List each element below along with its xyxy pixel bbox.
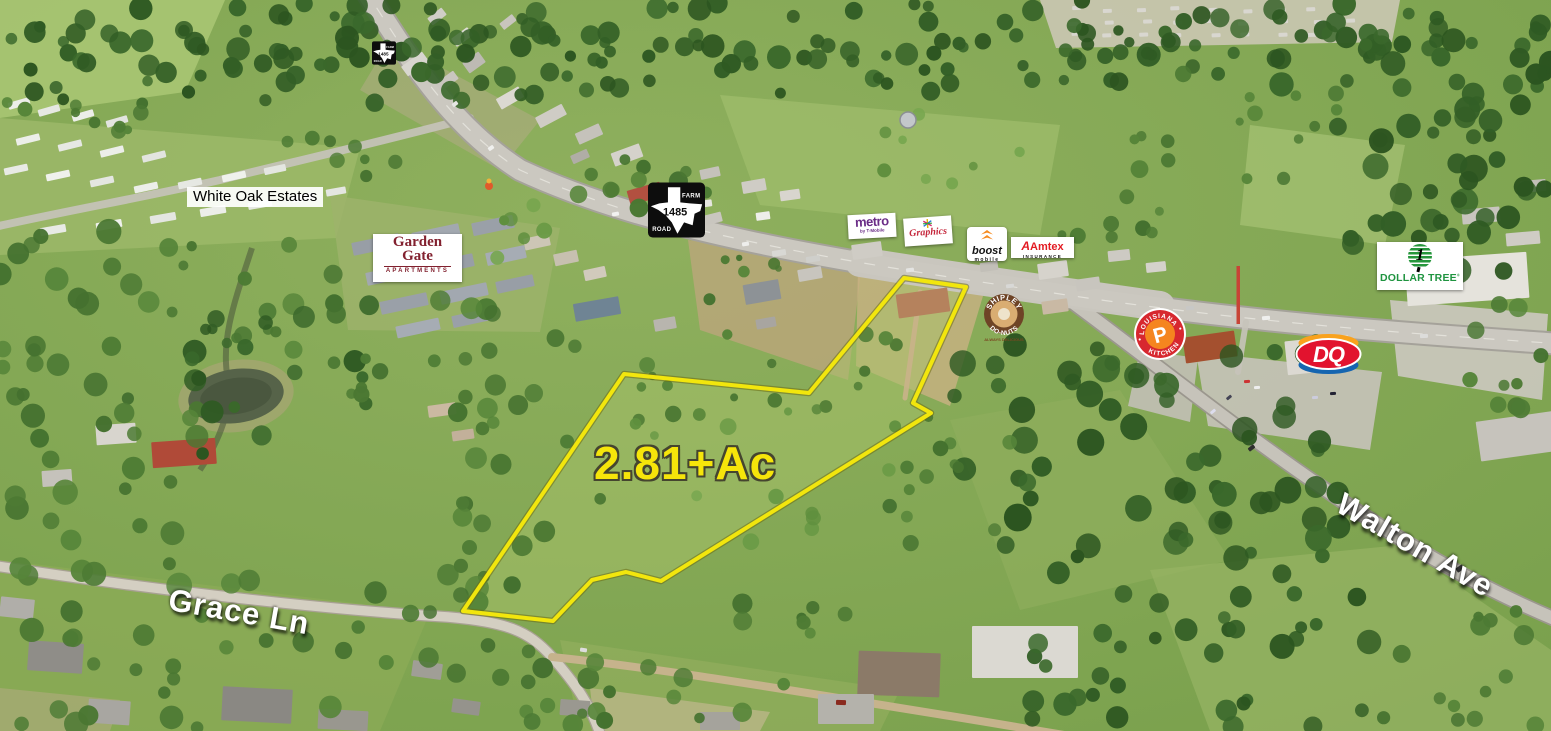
fm1485-sign-small: FARM 1485 ROAD	[372, 39, 396, 67]
aerial-property-photo: White Oak Estates Grace Ln Walton Ave 2.…	[0, 0, 1551, 731]
divider	[384, 266, 451, 267]
fm1485-sign-large: FARM 1485 ROAD	[648, 182, 705, 238]
amtex-insurance-sign: AAmtex INSURANCE	[1011, 237, 1074, 258]
water-tower	[900, 112, 916, 128]
shipley-tagline: ALWAYS DELICIOUS	[984, 337, 1024, 342]
metro-wordmark: metro	[847, 214, 896, 229]
boost-chevron-icon	[978, 229, 996, 241]
amtex-monogram: A	[1021, 239, 1030, 253]
farm-text: FARM	[682, 194, 700, 200]
road-text: ROAD	[652, 227, 671, 233]
script-store-wordmark: Graphics	[904, 226, 953, 239]
garden-gate-apartments-sign: Garden Gate APARTMENTS	[373, 234, 462, 282]
radio-tower	[1237, 266, 1241, 324]
amtex-wordmark: Amtex	[1030, 241, 1064, 253]
svg-text:ROAD: ROAD	[374, 60, 382, 63]
dairy-queen-logo: DQ	[1291, 333, 1366, 375]
acreage-label: 2.81+Ac	[594, 436, 776, 490]
boost-byline: mobile	[967, 257, 1007, 261]
route-number: 1485	[663, 207, 687, 219]
dollar-tree-sign: 1 DOLLAR TREE®	[1377, 242, 1463, 290]
svg-text:FARM: FARM	[386, 46, 394, 49]
script-store-sign: Graphics	[903, 215, 953, 246]
svg-text:1485: 1485	[378, 51, 389, 56]
dollar-tree-numeral: 1	[1407, 245, 1433, 265]
boost-wordmark: boost	[967, 246, 1007, 257]
garden-gate-subtitle: APARTMENTS	[373, 268, 462, 274]
dollar-tree-trunk	[1416, 267, 1420, 272]
dollar-tree-name-text: DOLLAR TREE	[1380, 272, 1457, 284]
shipley-donuts-logo: SHIPLEY DO-NUTS ALWAYS DELICIOUS	[974, 291, 1034, 345]
white-oak-estates-label: White Oak Estates	[187, 187, 323, 207]
registered-mark: ®	[1457, 273, 1460, 278]
amtex-subtitle: INSURANCE	[1011, 254, 1074, 258]
boost-mobile-sign: boost mobile	[967, 227, 1007, 261]
metro-by-tmobile-sign: metro by T-Mobile	[847, 213, 896, 239]
dollar-tree-wordmark: DOLLAR TREE®	[1377, 272, 1463, 285]
dq-monogram: DQ	[1313, 342, 1345, 367]
garden-gate-line2: Gate	[373, 250, 462, 264]
popeyes-louisiana-kitchen-logo: LOUISIANA KITCHEN P	[1120, 305, 1200, 363]
